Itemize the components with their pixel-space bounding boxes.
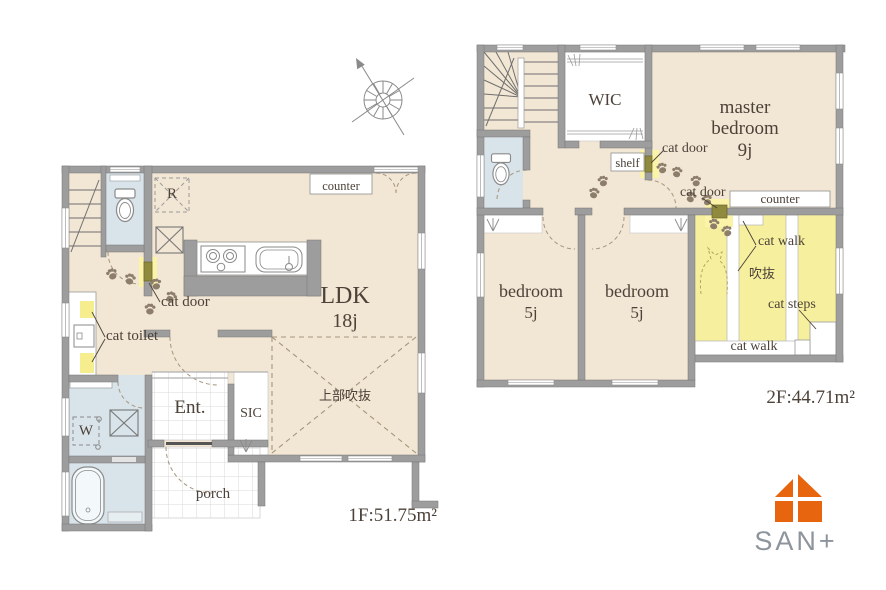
cat-door-icon [712, 205, 727, 218]
toilet-icon [115, 189, 135, 222]
stove-icon [201, 246, 245, 272]
floorplan-drawing [0, 0, 886, 590]
cat-door-label-1f: cat door [161, 294, 210, 311]
cat-walk-label-top: cat walk [758, 234, 805, 250]
cat-steps-label: cat steps [768, 297, 816, 313]
master-size-label: 9j [695, 140, 795, 161]
shelf-label: shelf [611, 156, 644, 170]
void-above-label-1f: 上部吹抜 [305, 389, 385, 404]
ldk-size-label: 18j [300, 310, 390, 332]
fridge-label: R [158, 186, 186, 203]
floor1-fills [65, 169, 422, 528]
bedroom2-size-label: 5j [592, 303, 682, 322]
toilet-shelf-icon [110, 175, 140, 181]
closet-icon [630, 215, 688, 233]
floor2-area-label: 2F:44.71m² [723, 387, 855, 408]
porch-label: porch [186, 486, 240, 503]
counter-label-1f: counter [310, 179, 372, 193]
bath-counter-icon [108, 512, 142, 522]
bedroom1-size-label: 5j [486, 303, 576, 322]
cat-toilet-label: cat toilet [106, 328, 158, 345]
master-bedroom-label: master bedroom [695, 97, 795, 140]
bathtub-icon [72, 467, 104, 524]
cat-door-label-2f-a: cat door [662, 141, 707, 157]
bedroom2-label: bedroom [592, 281, 682, 301]
logo-text: SAN+ [744, 526, 848, 556]
logo-house-icon [775, 474, 822, 522]
cat-litter-pad-icon [80, 301, 94, 318]
cat-door-icon [645, 156, 652, 172]
cat-litter-pad-icon [80, 353, 94, 373]
sink-icon [256, 247, 302, 272]
north-arrow-icon [356, 58, 365, 69]
counter-label-2f: counter [730, 192, 830, 207]
cat-door-label-2f-b: cat door [680, 185, 725, 201]
toilet-icon [492, 154, 511, 185]
entrance-label: Ent. [160, 397, 220, 418]
floorplan-page: counter R LDK 18j cat door cat toilet W … [0, 0, 886, 590]
bath-sliding-door [112, 457, 136, 462]
washer-label: W [74, 423, 98, 440]
void-label-2f: 吹抜 [740, 267, 784, 282]
cat-walk-label-bottom: cat walk [706, 339, 802, 355]
cat-walk-platform [739, 215, 763, 225]
cat-walk-bridge [727, 215, 739, 355]
wic-label: WIC [575, 90, 635, 109]
sic-label: SIC [236, 406, 266, 422]
bedroom1-label: bedroom [486, 281, 576, 301]
cat-door-icon [144, 262, 152, 281]
compass-icon [352, 58, 414, 135]
ldk-label: LDK [300, 283, 390, 310]
floor1-area-label: 1F:51.75m² [305, 505, 437, 526]
